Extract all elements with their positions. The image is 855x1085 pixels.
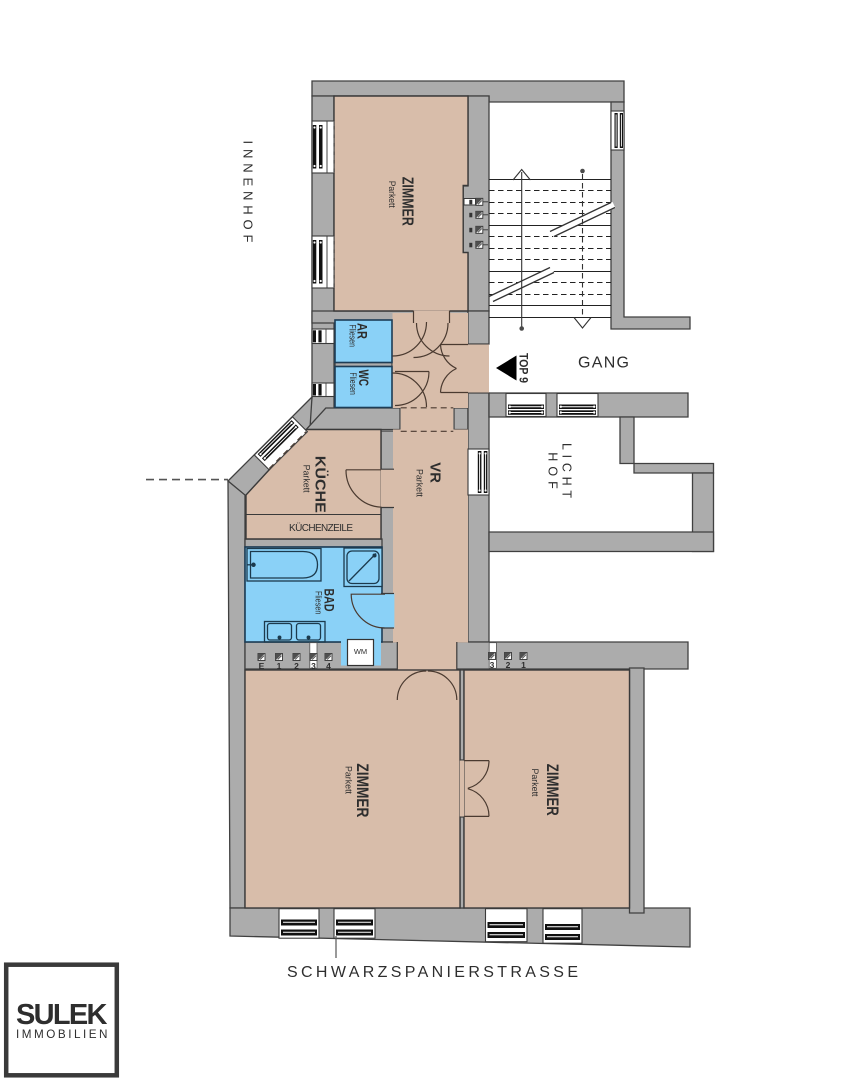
- svg-text:Parkett: Parkett: [529, 769, 540, 797]
- svg-text:SCHWARZSPANIERSTRASSE: SCHWARZSPANIERSTRASSE: [287, 964, 578, 981]
- svg-text:ZIMMER: ZIMMER: [399, 177, 416, 226]
- svg-text:1: 1: [521, 660, 526, 670]
- svg-text:WM: WM: [354, 647, 367, 656]
- svg-text:HOF: HOF: [546, 452, 560, 489]
- svg-text:SULEK: SULEK: [16, 999, 108, 1031]
- svg-text:VR: VR: [427, 462, 444, 483]
- svg-text:LICHT: LICHT: [560, 443, 574, 498]
- svg-text:KÜCHE: KÜCHE: [312, 456, 329, 513]
- svg-text:INNENHOF: INNENHOF: [241, 141, 256, 243]
- svg-text:1: 1: [277, 661, 282, 671]
- svg-text:Parkett: Parkett: [414, 469, 425, 497]
- svg-text:Parkett: Parkett: [386, 181, 397, 208]
- svg-text:2: 2: [506, 660, 511, 670]
- svg-text:Fliesen: Fliesen: [348, 372, 358, 395]
- svg-text:ZIMMER: ZIMMER: [353, 763, 372, 817]
- svg-text:TOP 9: TOP 9: [517, 353, 529, 383]
- svg-text:3: 3: [311, 661, 316, 671]
- svg-text:Parkett: Parkett: [301, 465, 312, 493]
- svg-text:E: E: [259, 661, 265, 671]
- svg-text:KÜCHENZEILE: KÜCHENZEILE: [289, 522, 353, 534]
- svg-text:4: 4: [326, 661, 331, 671]
- svg-text:ZIMMER: ZIMMER: [543, 764, 562, 816]
- svg-text:3: 3: [490, 660, 495, 670]
- svg-text:IMMOBILIEN: IMMOBILIEN: [16, 1028, 108, 1041]
- svg-text:GANG: GANG: [578, 355, 629, 372]
- svg-text:Parkett: Parkett: [343, 766, 354, 794]
- svg-text:2: 2: [294, 661, 299, 671]
- svg-text:Fliesen: Fliesen: [348, 324, 358, 347]
- svg-text:Fliesen: Fliesen: [314, 591, 324, 615]
